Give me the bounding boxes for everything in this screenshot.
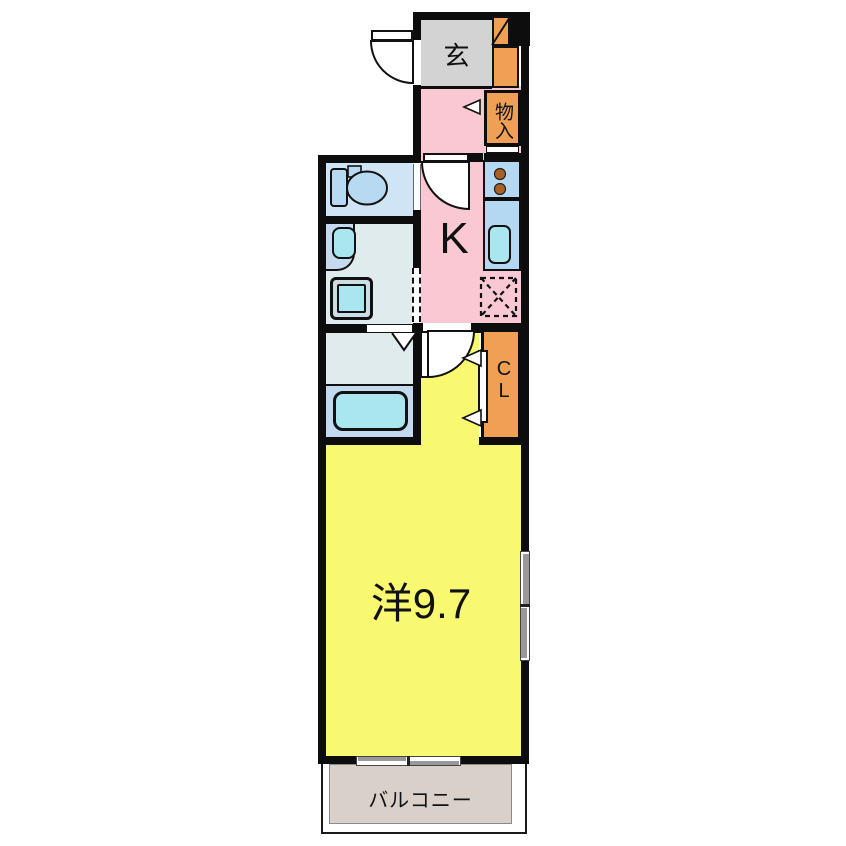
- balcony-window-pane-right: [410, 761, 459, 765]
- wall-entrance-left-b: [413, 85, 421, 163]
- storage-label: 物入: [491, 96, 514, 146]
- kitchen-sink: [488, 225, 511, 264]
- wall-left-block-top: [318, 155, 421, 163]
- kitchen-room-opening: [423, 323, 471, 333]
- floor-plan: 玄 物入 K CL 洋9.7 バルコニー: [0, 0, 846, 846]
- bathtub-icon: [333, 391, 408, 431]
- toilet-door: [413, 164, 421, 210]
- shoe-cabinet-lower: [492, 46, 519, 88]
- side-window-pane-lower: [521, 608, 527, 658]
- wall-bottom-left: [318, 756, 356, 764]
- bathroom-door-bar: [366, 324, 413, 333]
- entrance-door-leaf: [371, 30, 413, 41]
- genkan-label: 玄: [421, 23, 492, 85]
- washroom-folding-door: [412, 268, 421, 322]
- wall-hall-door-stub: [469, 153, 483, 162]
- wall-below-slit: [484, 153, 521, 160]
- closet-label: CL: [493, 353, 514, 407]
- shoe-cabinet-upper: [492, 16, 510, 46]
- closet-door-panel: [478, 350, 488, 423]
- kitchen-label: K: [424, 208, 484, 270]
- wall-pillar-top-right: [510, 12, 530, 46]
- wall-toilet-washroom: [318, 216, 421, 224]
- storage-counter-slit: [486, 146, 519, 153]
- entrance-opening: [413, 40, 421, 85]
- wall-left-outer: [318, 155, 326, 764]
- wall-inner-vertical-a: [413, 210, 421, 268]
- balcony-window-divider: [407, 756, 410, 766]
- wall-right-lower: [521, 661, 529, 764]
- wall-bottom-right: [461, 756, 529, 764]
- side-window-divider: [520, 604, 530, 607]
- toilet-floor: [326, 163, 413, 216]
- kitchen-counter-divider: [483, 197, 521, 201]
- entrance-door-swing-arc: [371, 41, 413, 83]
- room-door-leaf: [420, 331, 429, 378]
- washbasin-icon: [332, 227, 356, 259]
- wall-entrance-left-a: [413, 12, 421, 40]
- wall-bath-bottom: [318, 437, 421, 445]
- balcony-window-pane-left: [358, 757, 406, 761]
- hall-door-leaf: [423, 153, 469, 162]
- western-room-label: 洋9.7: [323, 572, 519, 628]
- side-window-pane-upper: [523, 554, 529, 604]
- corridor-floor: [421, 333, 479, 445]
- wall-right-upper: [521, 12, 529, 551]
- wall-washroom-bath: [318, 324, 366, 333]
- balcony-label: バルコニー: [329, 784, 512, 812]
- wall-genkan-edge-line: [421, 86, 492, 89]
- bathroom-upper-floor: [326, 333, 413, 384]
- washing-machine-inner: [337, 284, 366, 313]
